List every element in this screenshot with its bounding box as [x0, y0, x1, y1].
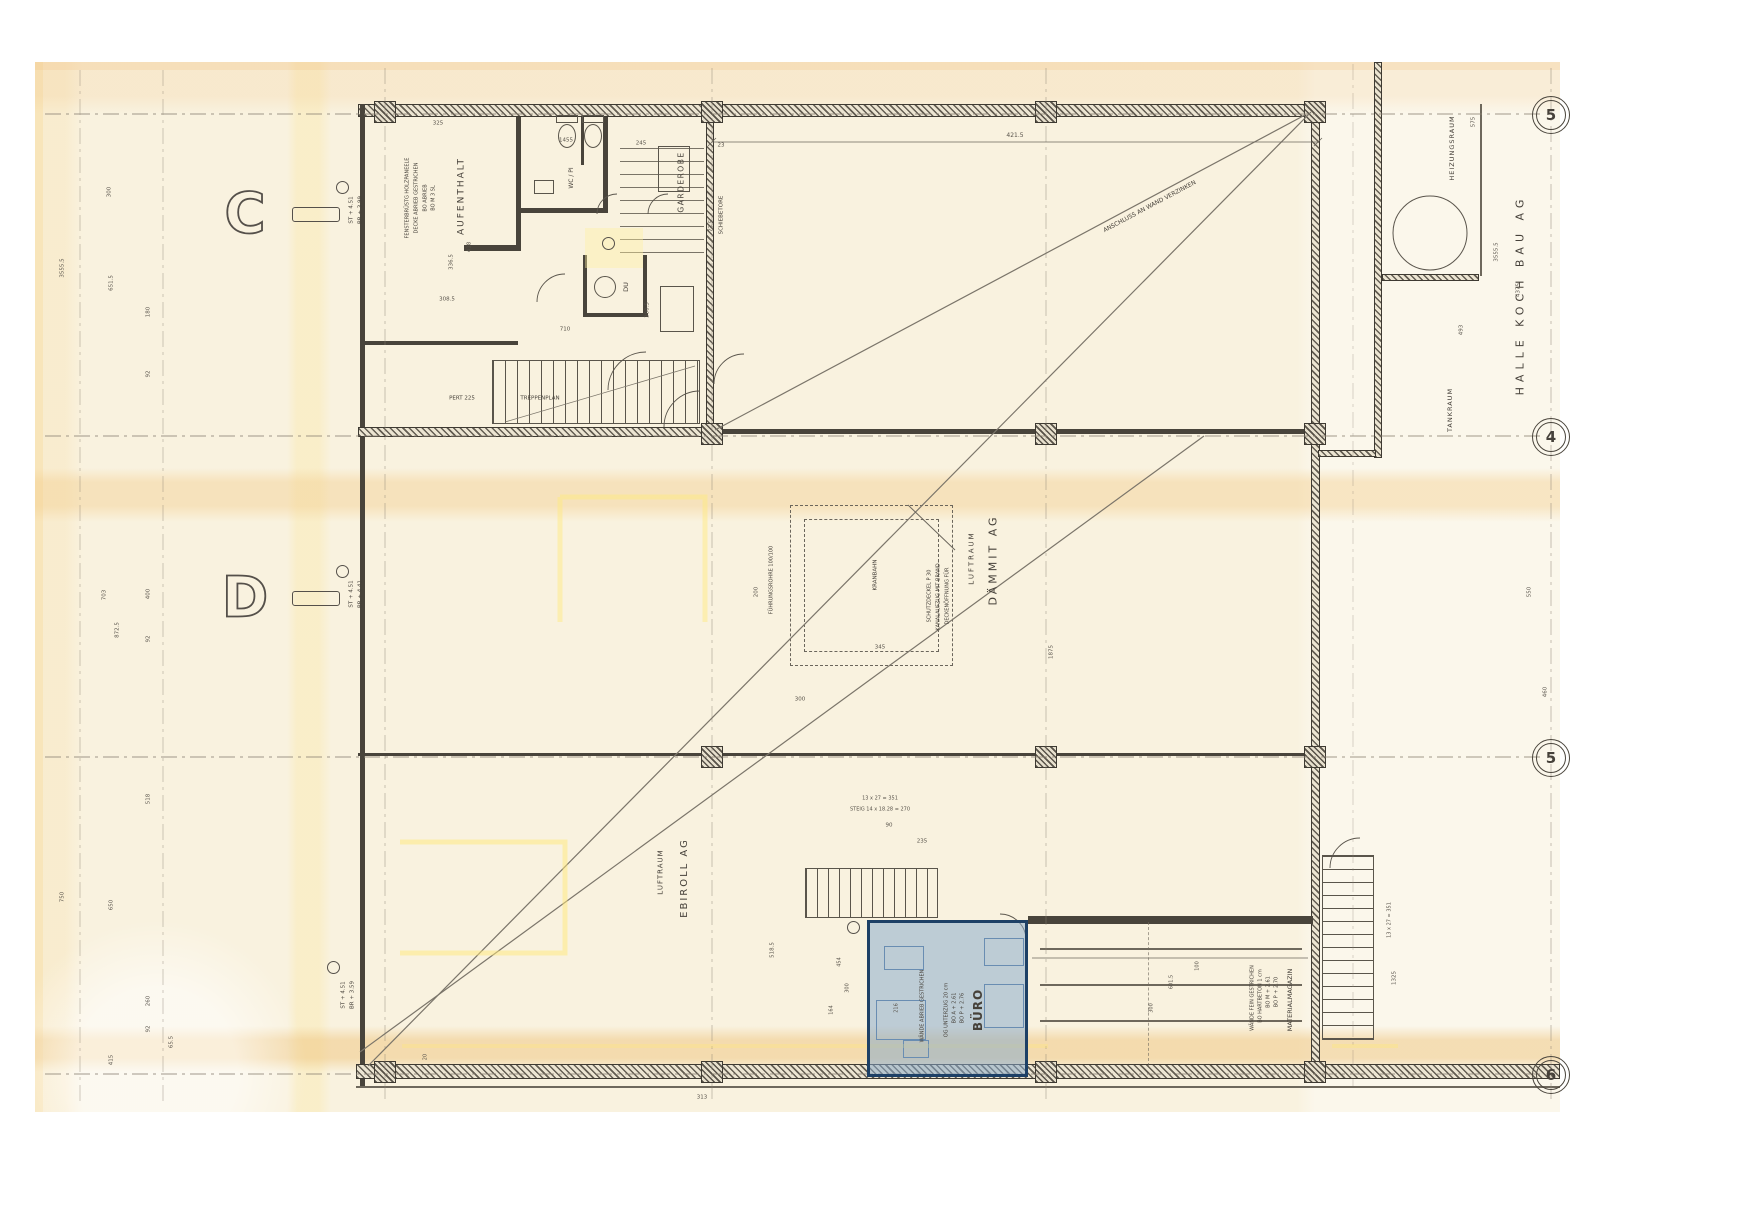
plan-label: KANALAUFZUG MIT BRAND-: [937, 561, 942, 630]
axis-marker: 5: [1532, 96, 1570, 134]
plan-label: 308.5: [439, 297, 455, 303]
plan-label: BR + 3.59: [350, 981, 356, 1009]
plan-label: BO ABRIEB: [424, 184, 429, 211]
plan-label: 100: [1196, 961, 1201, 971]
plan-label: EBIROLL AG: [680, 838, 690, 918]
plan-label: WÄNDE FEIN GESTRICHEN: [1251, 965, 1256, 1031]
plan-label: TANKRAUM: [1447, 388, 1454, 432]
plan-label: 1455: [559, 138, 573, 144]
plan-label: BO M 3 SL: [432, 185, 437, 211]
plan-label: 872.5: [115, 622, 121, 638]
plan-label: BR + 4.41: [358, 580, 364, 608]
floor-plan-viewer: AUFENTHALTBO M 3 SLBO ABRIEBDECKE ABRIEB…: [0, 0, 1756, 1216]
plan-label: FENSTERBRÜSTG HOLZPANEELE: [406, 158, 411, 239]
plan-label: 454: [838, 957, 843, 967]
plan-label: 601.5: [1170, 975, 1175, 989]
plan-label: 216: [895, 1003, 900, 1013]
plan-label: 300.5: [645, 302, 651, 318]
plan-label: 400: [146, 589, 152, 600]
section-letter-bar: [292, 591, 340, 606]
plan-label: ST + 4.51: [349, 196, 355, 223]
plan-label: 92: [146, 636, 152, 643]
plan-label: 703: [102, 590, 108, 601]
plan-label: SCHIEBETORE: [719, 196, 725, 235]
axis-marker: 4: [1532, 418, 1570, 456]
axis-marker-ring: [1536, 1060, 1566, 1090]
section-letter: D: [222, 566, 268, 631]
plan-label: 650: [109, 900, 115, 911]
section-letter-bar: [292, 207, 340, 222]
plan-label: DU: [623, 282, 630, 292]
plan-label: BR + 3.99: [358, 196, 364, 224]
plan-label: 1875: [1049, 645, 1055, 659]
plan-label: 65.5: [169, 1036, 175, 1048]
plan-label: 336.5: [449, 254, 455, 270]
plan-label: 345: [875, 645, 886, 651]
plan-label: 300: [846, 983, 851, 993]
plan-label: 750: [60, 892, 66, 903]
plan-label: 418: [467, 242, 473, 253]
plan-label: 460: [1543, 687, 1549, 698]
plan-label: 1325: [1392, 971, 1398, 985]
plan-label: 245: [636, 141, 647, 147]
plan-label: LUFTRAUM: [969, 531, 976, 584]
plan-label: 164: [830, 1005, 835, 1015]
plan-label: TREPPENPLAN: [520, 396, 559, 402]
plan-label: STEIG 14 x 18.28 = 270: [850, 808, 910, 813]
plan-label: 300: [1150, 1003, 1155, 1013]
plan-label: ST + 4.51: [349, 580, 355, 607]
plan-label: 325: [433, 121, 444, 127]
plan-label: BO M + 2.61: [1267, 976, 1272, 1008]
plan-label: 20: [424, 1054, 429, 1060]
plan-label: BÜRO: [972, 989, 984, 1031]
plan-label: 180: [146, 307, 152, 318]
plan-label: AUFENTHALT: [458, 157, 467, 235]
section-letter: C: [224, 182, 265, 247]
circle-marker: [847, 921, 860, 934]
plan-label: ST + 4.51: [341, 981, 347, 1008]
plan-label: WÄNDE ABRIEB GESTRICHEN: [921, 970, 926, 1043]
plan-label: SCHUTZDECKEL P 30: [928, 570, 933, 623]
axis-marker-ring: [1536, 100, 1566, 130]
plan-label: 13 x 27 = 351: [862, 797, 898, 802]
plan-label: 260: [146, 996, 152, 1007]
plan-label: 575: [1471, 117, 1477, 128]
plan-label: 90: [886, 823, 893, 829]
plan-label: 73.5: [709, 220, 715, 232]
circle-marker: [327, 961, 340, 974]
plan-label: 235: [917, 839, 928, 845]
plan-label: DECKENÖFFNUNG FÜR: [946, 568, 951, 625]
plan-label: 313: [697, 1095, 708, 1101]
plan-label: 518: [146, 794, 152, 805]
plan-label: ANSCHLUSS AN WAND VERZINKEN: [1103, 180, 1198, 234]
plan-label: DÄMMIT AG: [988, 514, 999, 605]
plan-label: 3555.5: [1494, 242, 1500, 261]
plan-label: DECKE ABRIEB GESTRICHEN: [415, 163, 420, 234]
plan-label: WC / PI: [569, 167, 575, 188]
axis-marker: 5: [1532, 739, 1570, 777]
axis-marker: 6: [1532, 1056, 1570, 1094]
plan-label: BO A + 2.61: [953, 993, 958, 1024]
plan-label: 200: [754, 587, 760, 598]
plan-label: 415: [109, 1055, 115, 1066]
axis-marker-ring: [1536, 422, 1566, 452]
plan-label: 3555.5: [60, 258, 66, 277]
plan-label: LUFTRAUM: [658, 849, 665, 894]
plan-label: 518.5: [770, 942, 776, 958]
plan-label: MATERIALMAGAZIN: [1287, 969, 1294, 1032]
plan-label: PERT 225: [449, 396, 475, 402]
plan-label: 92: [146, 1026, 152, 1033]
plan-label: HEIZUNGSRAUM: [1449, 115, 1456, 180]
plan-label: BO P + 2.76: [961, 993, 966, 1023]
plan-label: GARDEROBE: [677, 151, 685, 212]
circle-marker: [336, 565, 349, 578]
plan-label: 421.5: [1006, 133, 1023, 139]
plan-label: BO P + 2.70: [1275, 977, 1280, 1007]
plan-label: 92: [146, 371, 152, 378]
circle-marker: [602, 237, 615, 250]
plan-label: 13 x 27 = 351: [1388, 902, 1393, 938]
plan-label: BO HARTBETON 1 cm: [1259, 969, 1264, 1023]
plan-label: OG UNTERZUG 20 cm: [945, 983, 950, 1038]
plan-annotations: AUFENTHALTBO M 3 SLBO ABRIEBDECKE ABRIEB…: [0, 0, 1756, 1216]
plan-label: 710: [560, 327, 571, 333]
plan-label: 23: [718, 143, 725, 149]
plan-label: 550: [1527, 587, 1533, 598]
plan-label: 4375: [1516, 283, 1522, 297]
plan-label: 651.5: [109, 275, 115, 291]
axis-marker-ring: [1536, 743, 1566, 773]
plan-label: 493: [1459, 325, 1465, 336]
plan-label: 300: [795, 697, 806, 703]
circle-marker: [336, 181, 349, 194]
plan-label: KRANBAHN: [873, 560, 879, 591]
plan-label: 300: [107, 187, 113, 198]
plan-label: FÜHRUNGSROHRE 100/100: [770, 546, 775, 614]
